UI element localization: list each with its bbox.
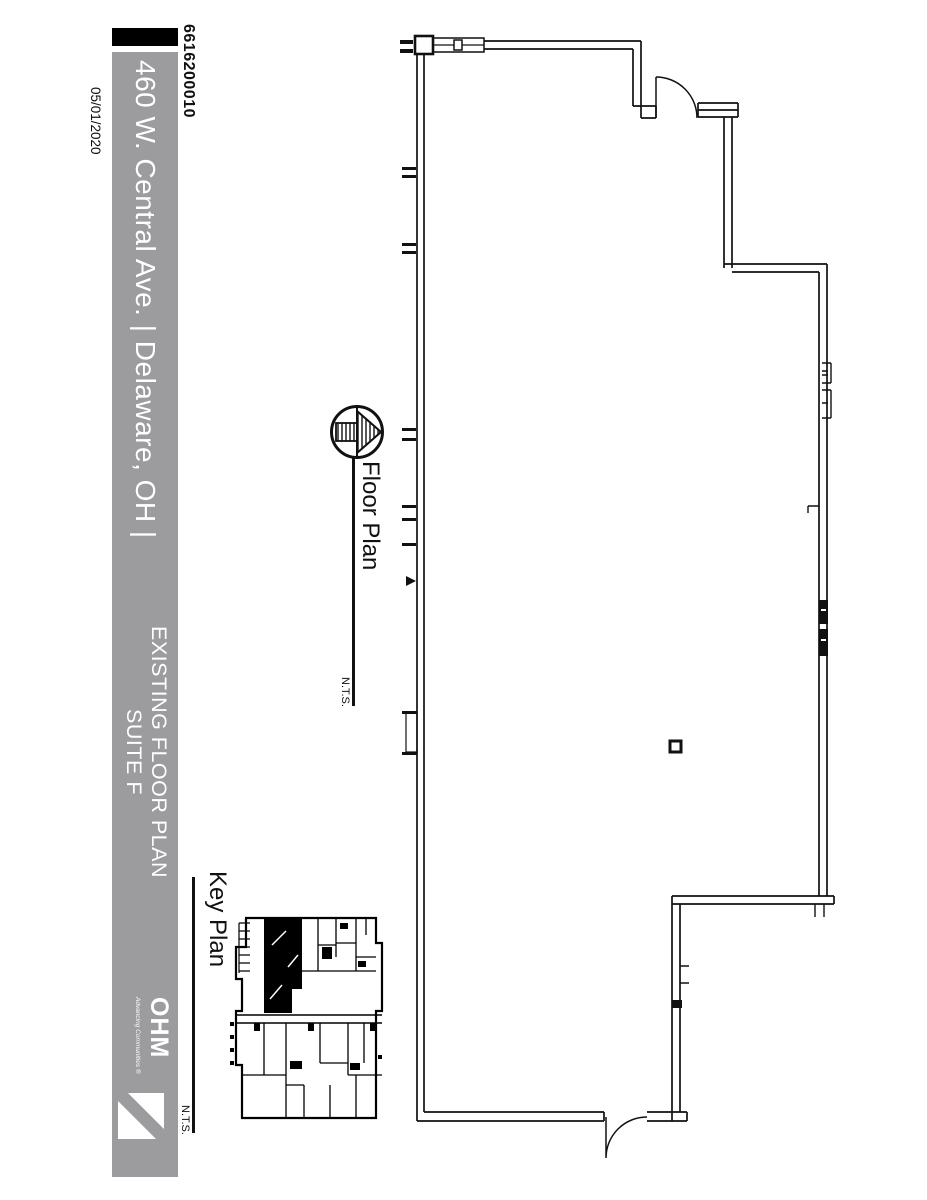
ohm-logo-tagline: Advancing Communities ® [134, 997, 141, 1074]
floor-plan-title-underline [352, 458, 355, 706]
suite-f-highlight [264, 918, 302, 1013]
drawing-title-line1: EXISTING FLOOR PLAN [146, 597, 171, 907]
sheet-date: 05/01/2020 [88, 87, 103, 155]
key-plan-scale-note: N.T.S. [179, 1105, 191, 1135]
project-number: 6616200010 [179, 24, 197, 118]
title-bar-content: 460 W. Central Ave. | Delaware, OH | EXI… [112, 52, 178, 1177]
key-plan-title: Key Plan [203, 871, 231, 967]
north-arrow-icon [328, 403, 386, 461]
floor-plan-scale-note: N.T.S. [339, 677, 351, 707]
drawing-sheet: 6616200010 05/01/2020 460 W. Central Ave… [0, 0, 927, 1200]
project-address: 460 W. Central Ave. | Delaware, OH | [112, 60, 178, 539]
ohm-logo: OHM Advancing Communities ® [112, 997, 178, 1167]
ohm-triangles-icon [118, 1093, 164, 1139]
drawing-title: EXISTING FLOOR PLAN SUITE F [121, 597, 171, 907]
title-bar: 460 W. Central Ave. | Delaware, OH | EXI… [112, 52, 178, 1177]
key-plan-title-underline [192, 877, 195, 1133]
ohm-logo-text: OHM [144, 997, 173, 1058]
drawing-title-line2: SUITE F [121, 597, 146, 907]
key-plan-drawing [230, 915, 390, 1122]
title-block-top-band [112, 28, 178, 46]
column-symbol [670, 741, 681, 752]
floor-plan-drawing [395, 25, 840, 1170]
floor-plan-title: Floor Plan [356, 461, 384, 570]
